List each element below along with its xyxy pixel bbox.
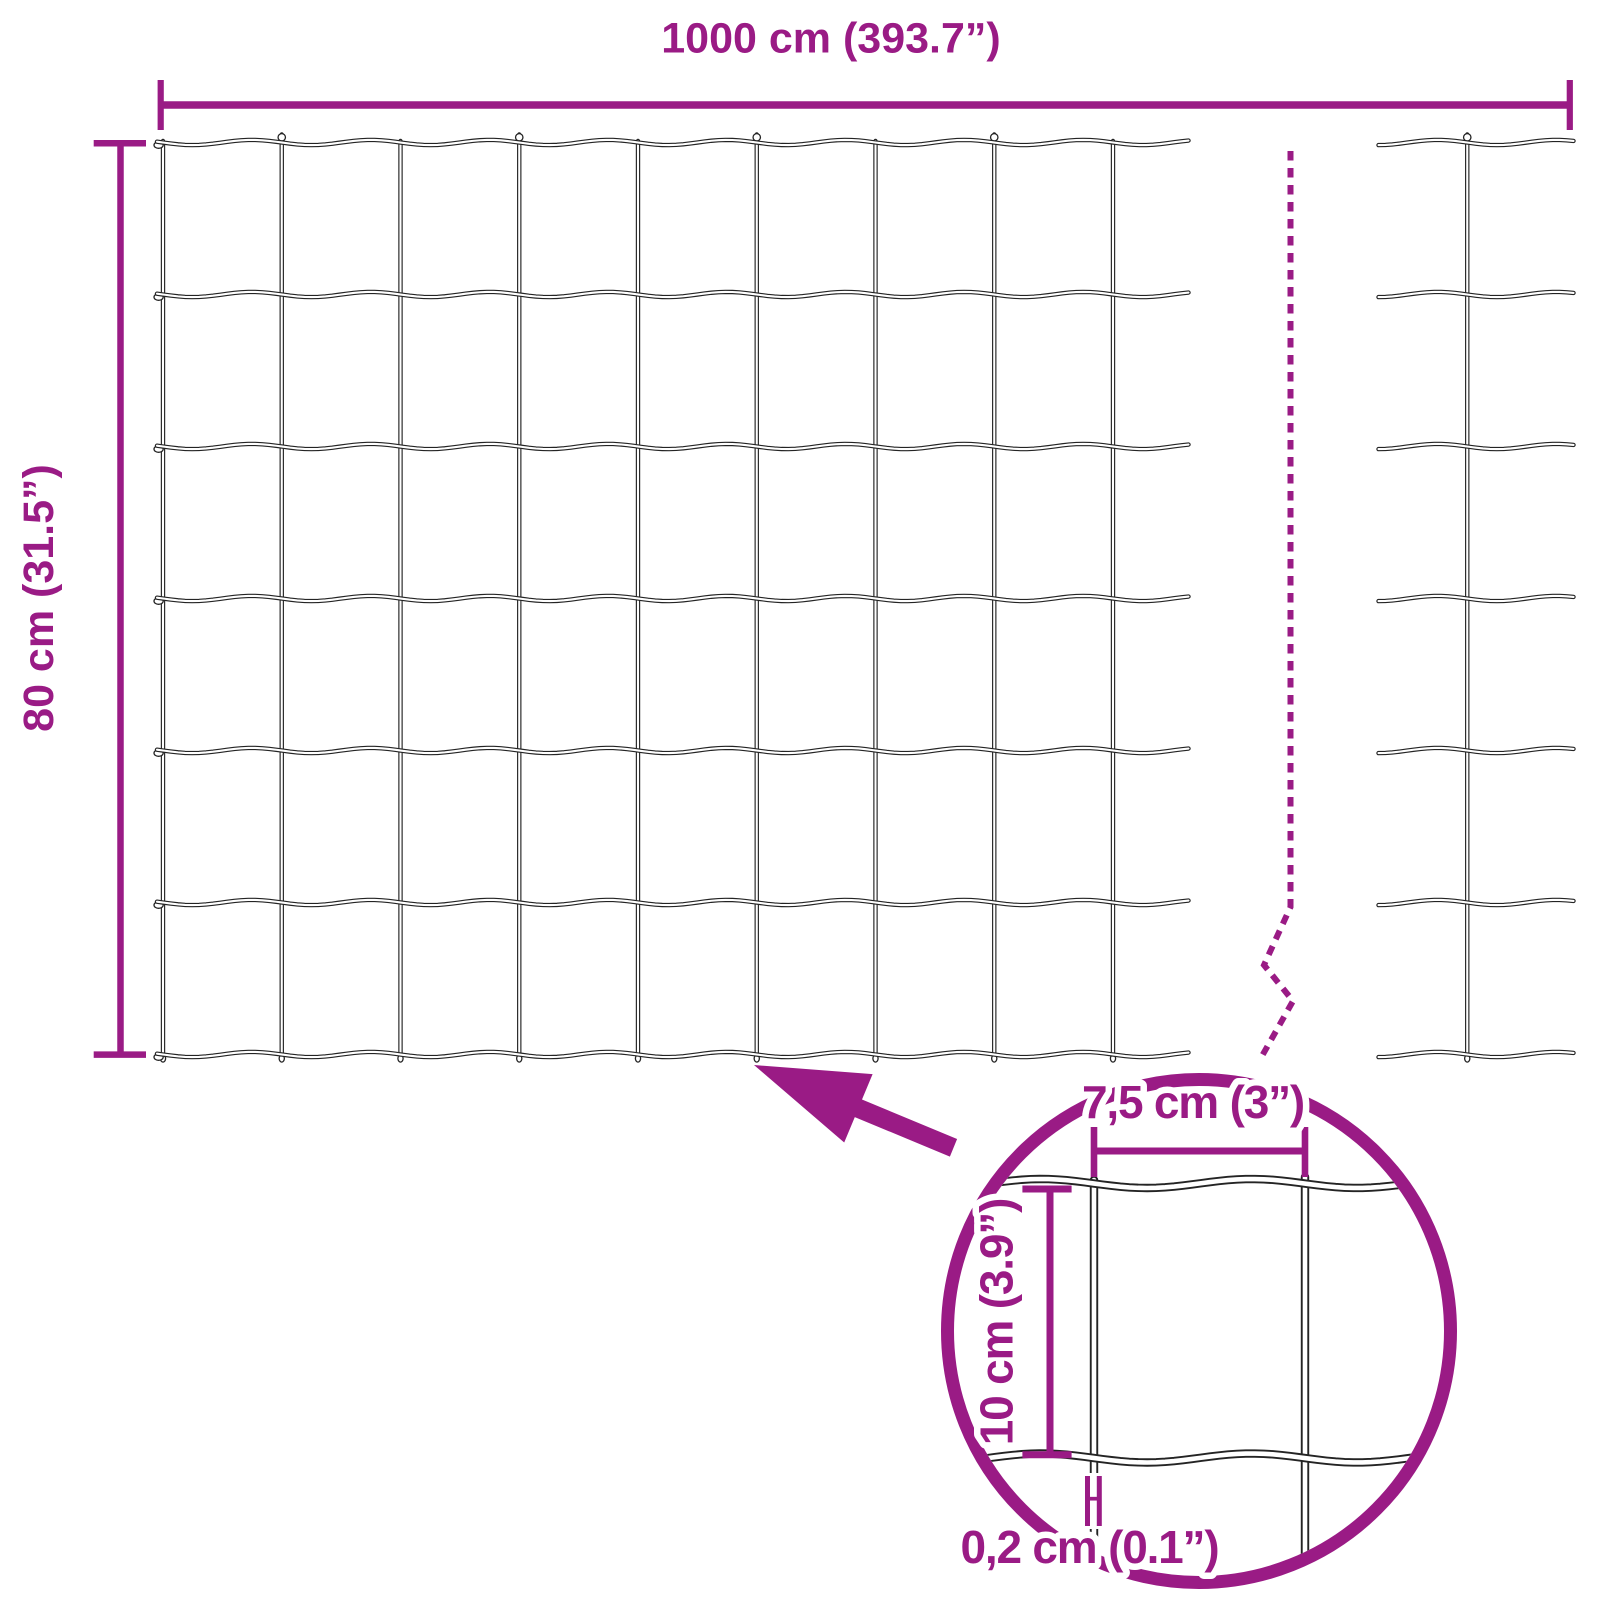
svg-text:7,5 cm (3”): 7,5 cm (3”) bbox=[1082, 1076, 1304, 1128]
svg-text:10 cm (3.9”): 10 cm (3.9”) bbox=[971, 1199, 1023, 1445]
svg-text:0,2 cm (0.1”): 0,2 cm (0.1”) bbox=[961, 1521, 1219, 1573]
svg-text:1000 cm (393.7”): 1000 cm (393.7”) bbox=[661, 15, 1000, 63]
svg-text:80 cm (31.5”): 80 cm (31.5”) bbox=[15, 464, 63, 732]
